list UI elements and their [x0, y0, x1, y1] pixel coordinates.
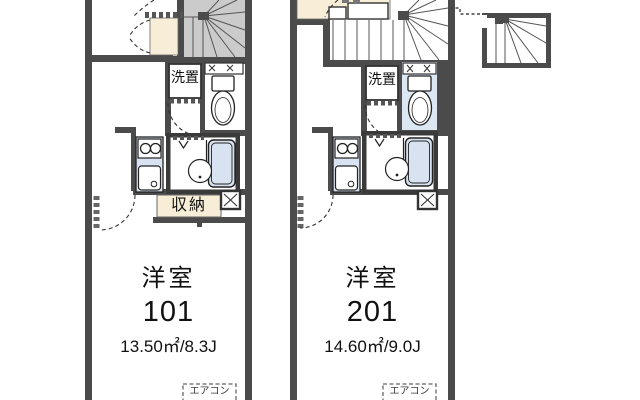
entrance-step: [348, 3, 388, 19]
door-swing-arc: [134, 0, 154, 16]
burner-icon: [338, 144, 348, 154]
toilet-tank-icon: [408, 76, 431, 91]
kitchen-sink-icon: [336, 166, 358, 190]
closet-label-101: 収納: [157, 198, 221, 215]
external-staircase: [482, 13, 551, 68]
unit-101-entrance: [129, 0, 183, 55]
stair-newel: [398, 11, 409, 20]
washbasin-icon: [189, 160, 212, 183]
washer-label-201: 洗置: [366, 72, 398, 87]
bathtub-icon: [406, 138, 433, 186]
drain-dot: [396, 174, 399, 177]
washer-label-101: 洗置: [169, 70, 201, 85]
room-type-101: 洋室: [142, 258, 196, 293]
room-type-201: 洋室: [346, 258, 400, 293]
burner-icon: [348, 144, 358, 154]
wall: [323, 19, 330, 67]
unit-101-toilet: [205, 63, 243, 125]
unit-201-entrance: [297, 0, 390, 19]
drain-dot: [199, 176, 202, 179]
drain-icon: [151, 181, 157, 187]
stair-entry-gap: [482, 15, 487, 28]
unit-101-kitchen: [136, 137, 163, 192]
washbasin-icon: [386, 158, 409, 181]
door-swing-arc: [300, 195, 333, 228]
unit-201-meter-box: [418, 191, 437, 209]
unit-101-staircase: [184, 0, 245, 57]
bathtub-icon: [209, 140, 236, 187]
unit-101-bathroom: [166, 133, 240, 194]
unit-201-room-door: [300, 195, 333, 231]
wall: [328, 133, 333, 191]
wall: [92, 55, 173, 62]
wall: [131, 133, 136, 191]
wall: [312, 127, 333, 133]
wall: [153, 217, 252, 223]
door-swing-arc: [168, 103, 201, 136]
door-swing-arc: [100, 195, 135, 230]
aircon-label-101: エアコン: [183, 387, 236, 398]
room-label-101: 洋室 101 13.50㎡/8.3J: [92, 258, 245, 357]
unit-101-meter-box: [221, 191, 240, 209]
clipped-text: [342, 0, 349, 3]
door-swing-arc: [129, 20, 150, 37]
toilet-shelf: [403, 63, 436, 74]
outer-wall-left: [290, 0, 297, 400]
unit-201-bathroom: [362, 131, 438, 194]
genkan-floor: [150, 18, 178, 55]
wall: [437, 62, 455, 136]
room-label-201: 洋室 201 14.60㎡/9.0J: [297, 258, 448, 357]
wall: [115, 127, 136, 133]
room-area-201: 14.60㎡/9.0J: [324, 332, 420, 357]
room-area-101: 13.50㎡/8.3J: [120, 332, 216, 357]
aircon-label-201: エアコン: [383, 387, 436, 398]
burner-icon: [141, 144, 151, 154]
floor-plan: 洗置 洗置 収納 洋室 101 13.50㎡/8.3J 洋室 201 14.60…: [0, 0, 640, 400]
entrance-step: [329, 7, 346, 19]
stair-newel: [500, 15, 509, 23]
room-number-201: 201: [347, 296, 398, 329]
unit-201-toilet: [402, 62, 437, 130]
door-swing-arc: [129, 37, 150, 53]
drain-icon: [348, 181, 354, 187]
burner-icon: [151, 144, 161, 154]
outer-wall-left: [85, 0, 92, 400]
kitchen-sink-icon: [139, 166, 161, 190]
toilet-shelf: [205, 63, 243, 74]
unit-101-room-door: [97, 195, 136, 231]
clipped-text: [353, 0, 360, 3]
unit-201-kitchen: [333, 137, 360, 192]
wall-tick: [197, 223, 202, 227]
toilet-tank-icon: [212, 76, 234, 91]
stair-newel: [198, 12, 209, 20]
room-number-101: 101: [143, 296, 194, 329]
